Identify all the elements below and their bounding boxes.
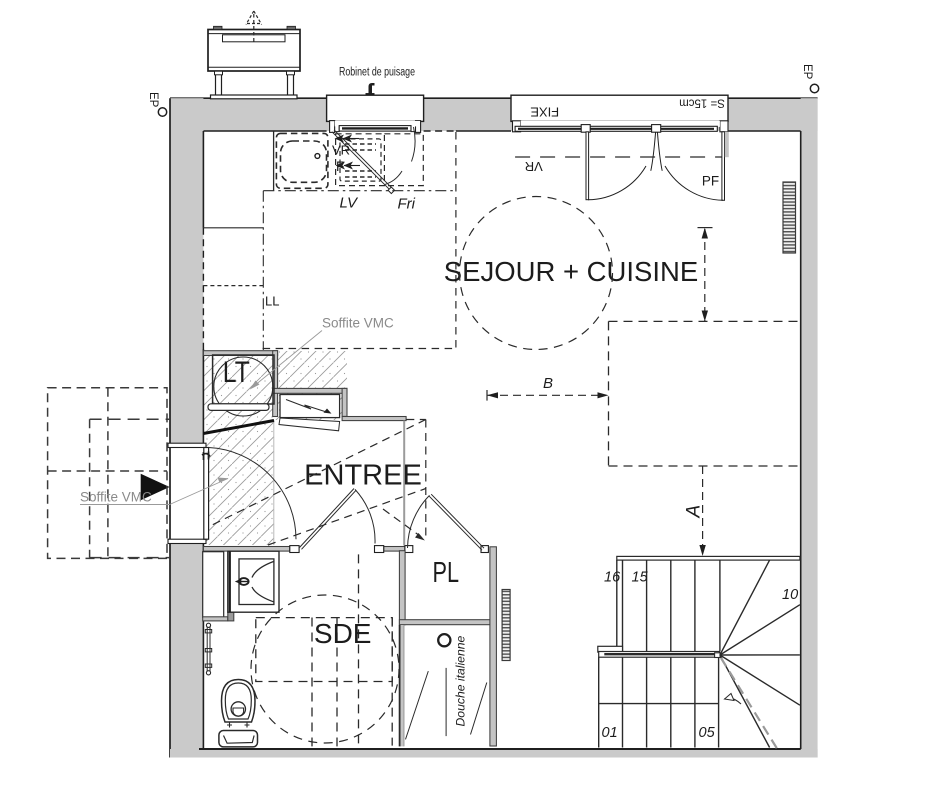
svg-text:ENTREE: ENTREE: [304, 460, 422, 492]
svg-text:VR: VR: [525, 159, 543, 174]
svg-text:01: 01: [602, 725, 618, 741]
svg-text:B: B: [543, 375, 553, 392]
svg-text:FIXE: FIXE: [530, 105, 559, 120]
svg-text:SEJOUR + CUISINE: SEJOUR + CUISINE: [444, 256, 698, 287]
svg-text:A: A: [684, 505, 705, 519]
svg-text:PF: PF: [702, 174, 719, 189]
svg-text:F: F: [336, 159, 344, 174]
svg-text:LT: LT: [223, 356, 250, 389]
svg-text:15: 15: [632, 570, 649, 586]
svg-text:SDE: SDE: [314, 618, 372, 649]
svg-text:Fri: Fri: [398, 196, 416, 213]
svg-text:PL: PL: [433, 557, 460, 589]
svg-text:10: 10: [782, 587, 798, 603]
svg-text:Robinet de puisage: Robinet de puisage: [339, 67, 415, 79]
svg-text:EP: EP: [801, 64, 813, 80]
svg-text:LV: LV: [340, 195, 360, 212]
svg-text:LL: LL: [265, 294, 279, 309]
svg-text:Soffite VMC: Soffite VMC: [322, 316, 394, 331]
svg-text:Soffite VMC: Soffite VMC: [80, 490, 152, 505]
svg-text:05: 05: [699, 725, 716, 741]
svg-text:Douche italienne: Douche italienne: [454, 635, 468, 726]
svg-text:EP: EP: [147, 92, 159, 108]
svg-text:S= 15cm: S= 15cm: [679, 96, 725, 108]
svg-text:16: 16: [604, 570, 621, 586]
svg-text:VR: VR: [332, 143, 350, 158]
